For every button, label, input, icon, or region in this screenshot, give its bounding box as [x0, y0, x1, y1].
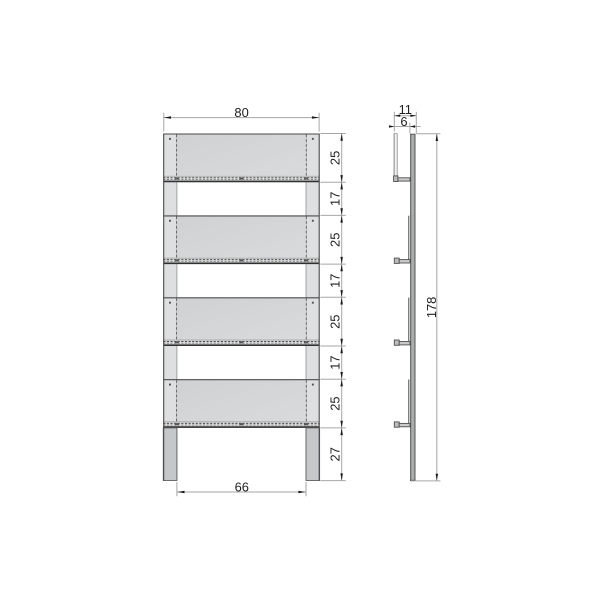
svg-text:66: 66 [235, 479, 249, 494]
svg-text:25: 25 [328, 233, 343, 247]
svg-text:178: 178 [424, 297, 439, 319]
svg-text:17: 17 [328, 274, 343, 288]
svg-text:6: 6 [400, 114, 407, 129]
svg-text:25: 25 [328, 315, 343, 329]
svg-text:25: 25 [328, 396, 343, 410]
svg-text:17: 17 [328, 355, 343, 369]
svg-text:17: 17 [328, 192, 343, 206]
svg-text:80: 80 [234, 105, 248, 120]
svg-text:27: 27 [328, 447, 343, 461]
svg-text:25: 25 [328, 151, 343, 165]
